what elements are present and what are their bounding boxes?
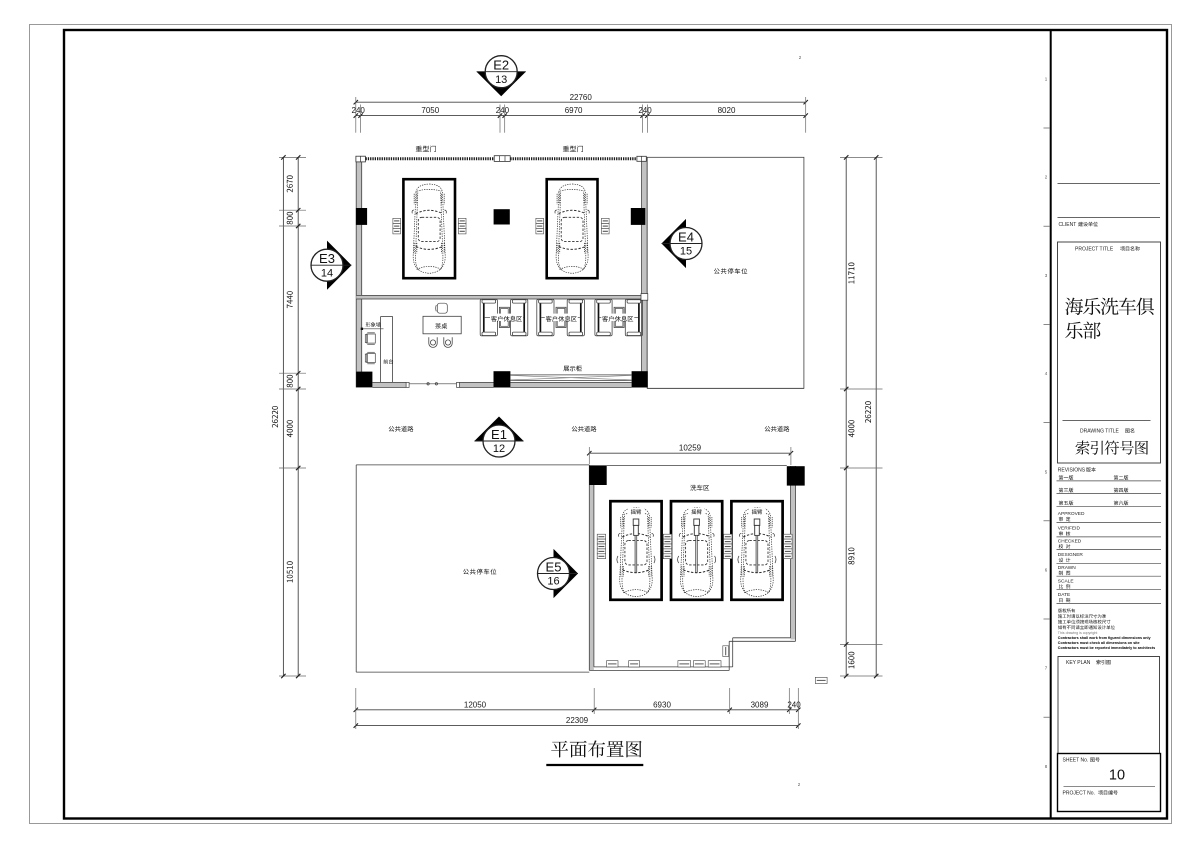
svg-text:22760: 22760 (570, 93, 593, 102)
svg-text:DRAWN: DRAWN (1058, 565, 1076, 571)
svg-text:REVISIONS: REVISIONS (1058, 468, 1086, 474)
svg-text:240: 240 (352, 106, 366, 115)
svg-text:240: 240 (638, 106, 652, 115)
svg-text:10259: 10259 (679, 444, 702, 453)
svg-text:KEY PLAN: KEY PLAN (1066, 660, 1091, 666)
svg-text:15: 15 (680, 246, 692, 258)
svg-text:12050: 12050 (464, 700, 487, 709)
svg-text:240: 240 (496, 106, 510, 115)
svg-text:E1: E1 (491, 427, 507, 442)
svg-text:SHEET No.: SHEET No. (1063, 758, 1089, 764)
svg-text:12: 12 (493, 443, 505, 455)
svg-text:6930: 6930 (653, 700, 671, 709)
svg-text:SCALE: SCALE (1058, 579, 1074, 585)
svg-text:DESIGNER: DESIGNER (1058, 552, 1084, 558)
svg-text:16: 16 (547, 576, 559, 588)
svg-text:This drawing is copyright: This drawing is copyright (1058, 631, 1098, 635)
svg-text:8020: 8020 (718, 106, 736, 115)
svg-text:CLIENT: CLIENT (1059, 222, 1077, 228)
svg-text:13: 13 (495, 74, 507, 86)
svg-text:E5: E5 (546, 559, 562, 574)
svg-text:7050: 7050 (421, 106, 439, 115)
svg-text:DATE: DATE (1058, 592, 1070, 598)
svg-text:DRAWING TITLE: DRAWING TITLE (1080, 429, 1120, 435)
svg-text:VERIFEID: VERIFEID (1058, 526, 1081, 532)
svg-text:240: 240 (787, 700, 801, 709)
svg-text:PROJECT No.: PROJECT No. (1063, 791, 1095, 797)
svg-text:6970: 6970 (565, 106, 583, 115)
svg-text:E4: E4 (678, 229, 694, 244)
svg-text:Contractors must be reported i: Contractors must be reported immediately… (1058, 646, 1155, 650)
svg-text:PROJECT TITLE: PROJECT TITLE (1075, 247, 1114, 253)
svg-text:CHECKED: CHECKED (1058, 538, 1082, 544)
svg-text:Contractors shall work from fi: Contractors shall work from figured dime… (1058, 636, 1152, 640)
svg-text:E3: E3 (319, 251, 335, 266)
svg-text:14: 14 (321, 267, 333, 279)
svg-text:3089: 3089 (751, 700, 769, 709)
svg-text:Contractors must check all dim: Contractors must check all dimensions on… (1058, 641, 1140, 645)
svg-text:10: 10 (1109, 768, 1125, 784)
svg-text:22309: 22309 (566, 716, 589, 725)
svg-text:APPROVED: APPROVED (1058, 511, 1085, 517)
svg-text:E2: E2 (493, 58, 509, 73)
